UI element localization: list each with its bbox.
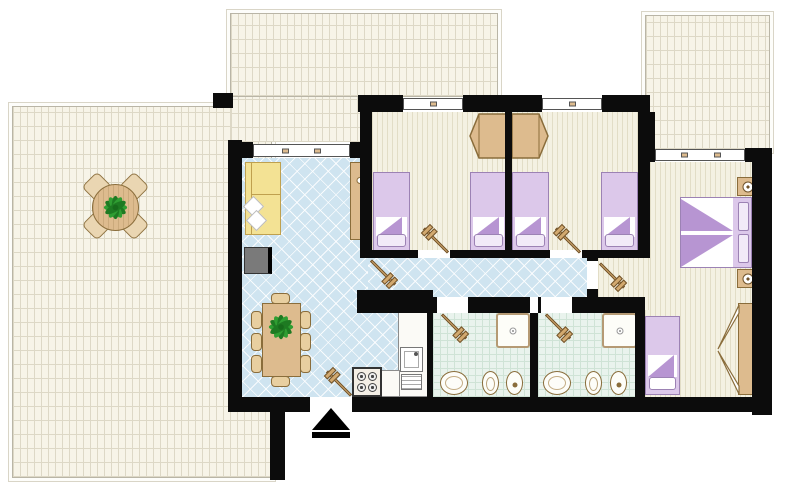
- shower-tray: [496, 313, 530, 348]
- dining-chair: [300, 355, 311, 373]
- wall: [352, 397, 772, 412]
- terrace-top-floor: [230, 13, 498, 97]
- single-bed: [470, 172, 507, 252]
- wall: [228, 140, 242, 412]
- dining-chair: [300, 333, 311, 351]
- bed-pillow: [738, 202, 749, 231]
- wall: [505, 112, 512, 253]
- window: [655, 149, 745, 161]
- kitchen-counter-corner: [380, 370, 400, 397]
- wall: [372, 250, 418, 258]
- wall: [427, 313, 433, 397]
- wall: [450, 250, 550, 258]
- floor-plan: [0, 0, 786, 500]
- wall: [468, 297, 530, 313]
- burner-icon: [368, 383, 377, 392]
- wall: [360, 95, 372, 258]
- wall: [745, 148, 772, 162]
- wall: [638, 148, 650, 258]
- single-bed: [601, 172, 638, 252]
- washbasin: [543, 371, 571, 395]
- wall: [357, 290, 433, 313]
- drain-icon: [510, 327, 517, 334]
- toilet: [585, 371, 602, 395]
- kitchen-sink: [400, 347, 423, 372]
- tv-unit: [244, 247, 272, 274]
- dining-chair: [251, 333, 262, 351]
- dining-chair: [251, 355, 262, 373]
- sink-drainer: [401, 374, 422, 390]
- door-opening: [437, 297, 468, 313]
- wall: [572, 297, 637, 313]
- single-bed: [645, 316, 680, 395]
- door-opening: [587, 261, 598, 289]
- sofa-seat-divider: [252, 194, 280, 195]
- wall: [228, 397, 310, 412]
- burner-icon: [368, 372, 377, 381]
- shower-tray: [602, 313, 637, 348]
- wall: [752, 148, 772, 415]
- bidet: [610, 371, 627, 395]
- stove: [352, 367, 382, 397]
- terrace-right-floor: [645, 15, 770, 150]
- burner-icon: [357, 372, 366, 381]
- dining-chair: [251, 311, 262, 329]
- wardrobe: [511, 113, 549, 159]
- single-bed: [373, 172, 410, 252]
- window: [403, 98, 463, 110]
- plant-icon: [266, 312, 296, 342]
- bed-pillow: [738, 234, 749, 263]
- wall: [270, 398, 285, 480]
- drain-icon: [616, 327, 623, 334]
- wall: [463, 95, 542, 112]
- wall: [530, 313, 538, 397]
- washbasin: [440, 371, 468, 395]
- sheet-fold-icon: [681, 198, 737, 268]
- bed-pillow: [377, 234, 406, 247]
- dining-chair: [271, 376, 290, 387]
- window: [542, 98, 602, 110]
- wardrobe-open-doors-icon: [716, 303, 740, 396]
- terrace-top-floor-ext: [231, 97, 363, 142]
- window: [253, 144, 350, 157]
- wall: [213, 93, 233, 108]
- entrance-arrow-icon: [312, 408, 350, 430]
- wardrobe: [469, 113, 507, 159]
- door-opening: [541, 297, 572, 313]
- dining-chair: [300, 311, 311, 329]
- toilet: [482, 371, 499, 395]
- burner-icon: [357, 383, 366, 392]
- wall: [602, 95, 650, 112]
- single-bed: [512, 172, 549, 252]
- plant-icon: [100, 192, 131, 223]
- wall: [228, 142, 253, 158]
- wall: [587, 253, 598, 261]
- double-bed: [680, 197, 752, 268]
- bidet: [506, 371, 523, 395]
- wall: [635, 297, 645, 397]
- entrance-arrow-base: [312, 432, 350, 438]
